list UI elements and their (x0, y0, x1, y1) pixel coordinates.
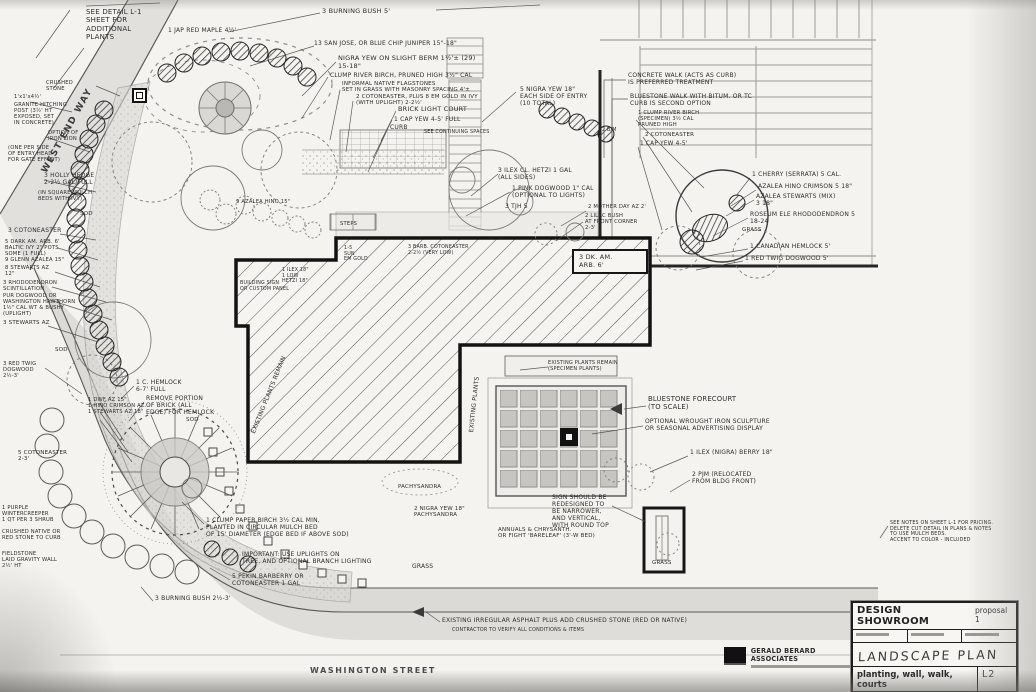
plan-annotation: 1 C. HEMLOCK 6-7' FULL (136, 379, 236, 393)
plan-annotation: NIGRA YEW ON SLIGHT BERM 1½'± (29) 15-18… (338, 55, 528, 70)
plan-annotation: CONCRETE WALK (ACTS AS CURB) IS PREFERRE… (628, 72, 803, 86)
plan-annotation: 9 AZALEA HINO 15" (236, 199, 331, 205)
plan-annotation: 1 CLUMP PAPER BIRCH 3½ CAL MIN, PLANTED … (206, 517, 401, 538)
plan-annotation: 1 PURPLE WINTERCREEPER 1 QT PER 3 SHRUB (2, 505, 90, 523)
plan-annotation: 3 STEWARTS AZ (3, 320, 95, 326)
annotation-layer: SEE DETAIL L-1 SHEET FOR ADDITIONAL PLAN… (0, 0, 1036, 692)
plan-annotation: 3 HOLLY HEDGE 2-2½ GAL/FULL (44, 172, 136, 186)
plan-annotation: CLUMP RIVER BIRCH, PRUNED HIGH 3½" CAL (330, 72, 530, 79)
title-block: DESIGN SHOWROOM proposal 1 LANDSCAPE PLA… (851, 601, 1018, 692)
proposal-label: proposal 1 (975, 606, 1012, 624)
plan-annotation: EXISTING PLANTS REMAIN (250, 311, 305, 434)
plan-annotation: 1'x1'x4½' (14, 94, 84, 100)
plan-annotation: AZALEA HINO CRIMSON 5 18" (758, 183, 908, 190)
sheet-title: LANDSCAPE PLAN (858, 647, 999, 664)
plan-annotation: EXISTING IRREGULAR ASPHALT PLUS ADD CRUS… (442, 617, 922, 624)
plan-annotation: 3 ILEX CL. HETZI 1 GAL (ALL SIDES) (498, 167, 668, 181)
plan-annotation: IMPORTANT: USE UPLIGHTS ON TREE, AND OPT… (242, 551, 437, 565)
firm-address-smudge (751, 665, 855, 668)
plan-annotation: 1 JAP RED MAPLE 4½' (168, 27, 308, 34)
plan-annotation: 2 B/M (602, 128, 632, 134)
plan-annotation: 3 TJH 5 (505, 203, 575, 210)
plan-annotation: PACHYSANDRA (398, 484, 488, 490)
plan-annotation: SIGN SHOULD BE REDESIGNED TO BE NARROWER… (552, 494, 647, 529)
plan-annotation: 3 COTONEASTER (8, 227, 100, 234)
plan-annotation: 1 CAP YEW 4-5' (640, 141, 750, 148)
plan-annotation: ROSEUM ELE RHODODENDRON 5 18-24 (750, 211, 910, 225)
plan-annotation: INFORMAL NATIVE FLAGSTONES SET IN GRASS … (342, 81, 517, 94)
street-label-washington: WASHINGTON STREET (278, 666, 468, 675)
sheet-subtitle: planting, wall, walk, courts (853, 667, 977, 691)
meta-cell-scale (853, 630, 908, 642)
plan-annotation: PUR DOGWOOD OR WASHINGTON HAWTHORN 1½" C… (3, 293, 105, 318)
meta-cell-drawn (908, 630, 963, 642)
plan-annotation: SOD (186, 417, 226, 423)
firm-text: GERALD BERARD ASSOCIATES (751, 647, 864, 668)
plan-annotation: GRASS (742, 227, 802, 233)
title-block-project-row: DESIGN SHOWROOM proposal 1 (853, 603, 1016, 630)
plan-annotation: OPTIONAL WROUGHT IRON SCULPTURE OR SEASO… (645, 418, 835, 432)
title-block-title-row: LANDSCAPE PLAN (853, 643, 1016, 667)
plan-annotation: 1 CAP YEW 4-5' FULL (394, 116, 514, 123)
plan-annotation: 2 LILAC BUSH AT FRONT CORNER 2-3' (585, 213, 685, 231)
plan-annotation: BLUESTONE WALK WITH BITUM. OR TC CURB IS… (630, 93, 815, 107)
plan-annotation: 3 RED TWIG DOGWOOD 2½-3' (3, 361, 73, 379)
plan-annotation: AZALEA STEWARTS (MIX) 3 18" (756, 193, 906, 207)
firm-stamp: GERALD BERARD ASSOCIATES (724, 647, 864, 668)
plan-annotation: 1 CHERRY (SERRATA) 5 CAL. (752, 171, 902, 178)
plan-annotation: BLUESTONE FORECOURT (TO SCALE) (648, 395, 803, 411)
plan-annotation: 5 COTONEASTER 2-3' (18, 450, 104, 463)
plan-annotation: SEE CONTINUING SPACES (424, 130, 514, 136)
plan-annotation: 1 ILEX 18" 1 LOW HETZI 18" (282, 268, 342, 285)
sheet-number: L2 (977, 667, 1016, 691)
plan-annotation: CRUSHED NATIVE OR RED STONE TO CURB (2, 529, 98, 541)
plan-annotation: 13 SAN JOSE, OR BLUE CHIP JUNIPER 15"-18… (314, 40, 524, 47)
plan-annotation: 5 NIGRA YEW 18" EACH SIDE OF ENTRY (10 T… (520, 86, 630, 107)
plan-annotation: 1 CANADIAN HEMLOCK 5' (750, 243, 900, 250)
plan-annotation: 3 BARB. COTONEASTER 2-2½ (VERY LOW) (408, 245, 503, 256)
plan-annotation: GRASS (412, 563, 472, 570)
firm-logo (724, 647, 746, 665)
plan-annotation: GRASS (652, 560, 712, 566)
plan-annotation: 2 NIGRA YEW 18" PACHYSANDRA (414, 506, 524, 519)
plan-annotation: 1-5 SUN EM GOLD (344, 246, 394, 263)
plan-annotation: STEPS (340, 221, 390, 227)
plan-annotation: EXISTING PLANTS REMAIN (SPECIMEN PLANTS) (548, 361, 693, 373)
project-name: DESIGN SHOWROOM (857, 605, 970, 627)
plan-annotation: 2 MOTHER DAY AZ 2' (588, 204, 698, 210)
plan-annotation: 1 RED TWIG DOGWOOD 5' (745, 255, 895, 262)
plan-annotation: 2 COTONEASTER (645, 132, 745, 138)
plan-annotation: 1 PINK DOGWOOD 1" CAL (OPTIONAL TO LIGHT… (512, 185, 672, 199)
plan-annotation: 5 PEKIN BARBERRY OR COTONEASTER 1 GAL (232, 573, 382, 587)
plan-annotation: SOD (55, 347, 95, 353)
plan-annotation: EXISTING PLANTS (468, 333, 485, 433)
plan-annotation: BRICK LIGHT COURT (398, 106, 518, 114)
scanned-landscape-plan: SEE DETAIL L-1 SHEET FOR ADDITIONAL PLAN… (0, 0, 1036, 692)
plan-annotation: (IN SQUARE MULCH BEDS WITH IVY) (38, 190, 134, 202)
plan-annotation: SOD (80, 211, 120, 217)
plan-annotation: 3 RHODODENDRON SCINTILLATION (3, 280, 99, 292)
plan-annotation: 3 BURNING BUSH 2½-3' (155, 595, 295, 602)
firm-name: GERALD BERARD ASSOCIATES (751, 647, 864, 663)
plan-annotation: SEE DETAIL L-1 SHEET FOR ADDITIONAL PLAN… (86, 8, 158, 41)
plan-annotation: FIELDSTONE LAID GRAVITY WALL 2½' HT (2, 551, 94, 569)
plan-annotation: 8 STEWARTS AZ 12" (5, 265, 97, 277)
plan-annotation: 3 DK. AM. ARB. 6' (572, 249, 648, 274)
plan-annotation: SEE NOTES ON SHEET L-1 FOR PRICING. DELE… (890, 521, 1018, 544)
meta-cell-date (962, 630, 1016, 642)
title-block-meta-row (853, 630, 1016, 643)
title-block-subtitle-row: planting, wall, walk, courts L2 (853, 667, 1016, 691)
plan-annotation: 3 BURNING BUSH 5' (322, 8, 452, 16)
plan-annotation: 1 CLUMP RIVER BIRCH (SPECIMEN) 3½ CAL PR… (638, 110, 748, 128)
plan-annotation: 1 DWF AZ 15" 1 HINO CRIMSON AZ 1 STEWART… (88, 397, 188, 415)
plan-annotation: 1 ILEX (NIGRA) BERRY 18" (690, 449, 835, 456)
plan-annotation: CONTRACTOR TO VERIFY ALL CONDITIONS & IT… (452, 628, 712, 634)
plan-annotation: 5 DARK AM. ARB. 6' BALTIC IVY 2" POTS SO… (5, 239, 101, 264)
plan-annotation: 2 PJM (RELOCATED FROM BLDG FRONT) (692, 471, 812, 485)
